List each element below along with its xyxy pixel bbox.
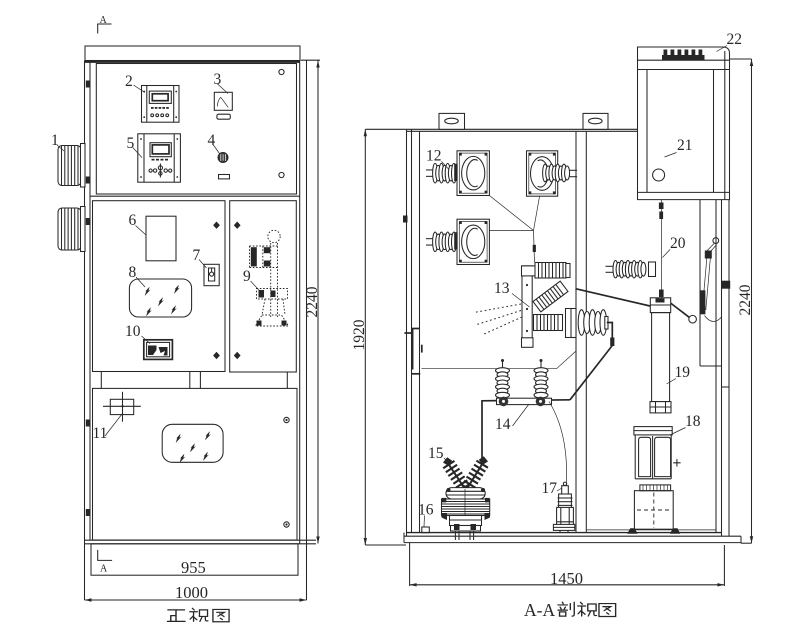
- svg-text:14: 14: [495, 416, 511, 433]
- svg-text:6: 6: [129, 212, 137, 229]
- svg-text:20: 20: [670, 235, 686, 252]
- svg-text:5: 5: [127, 135, 135, 152]
- svg-text:10: 10: [125, 323, 141, 340]
- svg-text:12: 12: [426, 148, 442, 165]
- svg-text:8: 8: [129, 264, 137, 281]
- svg-text:1920: 1920: [351, 319, 368, 350]
- svg-text:9: 9: [243, 268, 251, 285]
- svg-text:1: 1: [51, 132, 59, 149]
- svg-text:1450: 1450: [550, 569, 583, 588]
- svg-text:15: 15: [428, 445, 444, 462]
- svg-text:2: 2: [125, 73, 133, 90]
- svg-text:1000: 1000: [175, 583, 208, 602]
- svg-text:21: 21: [677, 137, 693, 154]
- svg-text:7: 7: [193, 247, 201, 264]
- svg-text:A-A: A-A: [524, 600, 555, 620]
- svg-text:955: 955: [181, 558, 206, 577]
- svg-text:A: A: [100, 15, 108, 26]
- svg-text:13: 13: [494, 280, 510, 297]
- svg-text:18: 18: [685, 413, 701, 430]
- svg-text:16: 16: [418, 502, 434, 519]
- svg-text:3: 3: [214, 71, 222, 88]
- svg-text:11: 11: [93, 425, 108, 442]
- svg-text:22: 22: [727, 31, 743, 48]
- svg-text:17: 17: [542, 480, 558, 497]
- svg-text:2240: 2240: [304, 286, 321, 317]
- svg-text:A: A: [100, 564, 108, 575]
- svg-text:2240: 2240: [737, 284, 754, 315]
- svg-text:19: 19: [675, 364, 691, 381]
